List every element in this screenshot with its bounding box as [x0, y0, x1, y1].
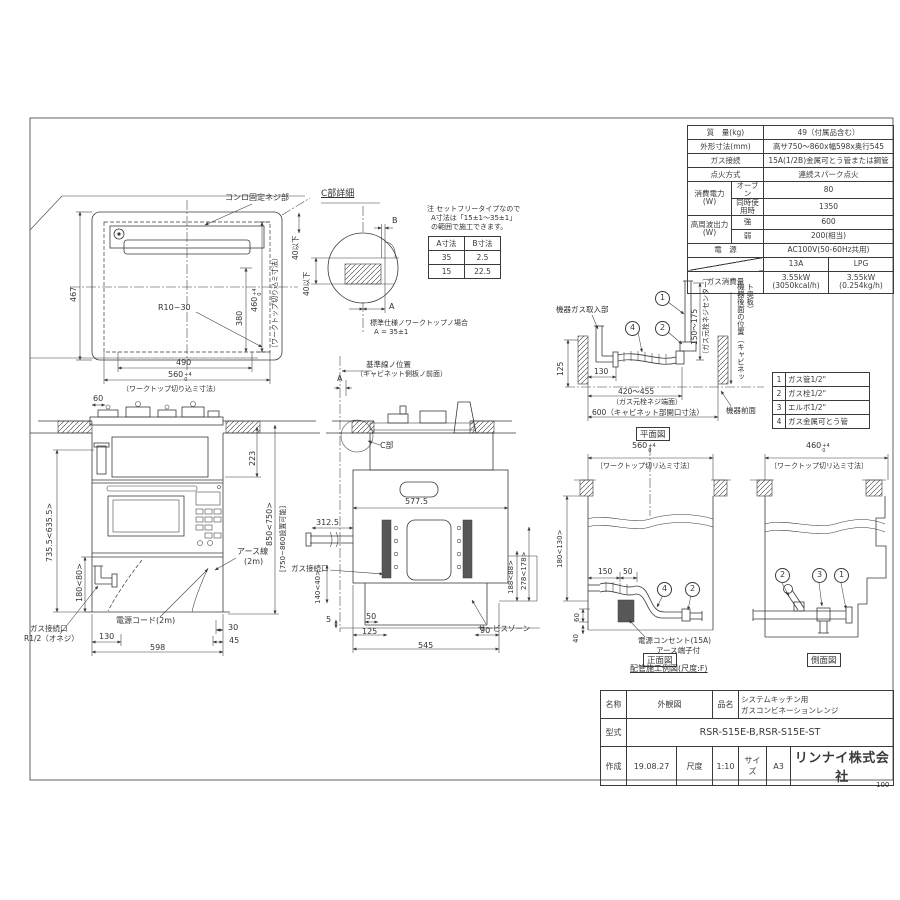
detail-c-marker: C部: [380, 442, 394, 451]
cutout-note-right: （ワークトップ切り込ミ寸法）: [272, 254, 280, 352]
detail-c: [311, 203, 399, 332]
ab-r1a: 35: [429, 251, 465, 265]
dim-850: 850<750>: [266, 502, 275, 546]
dim-560-pfront: 560+40: [632, 442, 656, 454]
spec-consumption-lpg: 3.55kW(0.254kg/h): [829, 271, 894, 293]
dim-600-opening: 600（キャビネット部開口寸法）: [592, 409, 704, 417]
balloon-1-pside: 1: [834, 568, 849, 583]
dim-5: 5: [326, 616, 331, 625]
dim-223: 223: [249, 451, 258, 466]
dim-420-455: 420～455: [618, 388, 654, 396]
tb-model-label: 型式: [601, 719, 627, 747]
spec-strong-value: 600: [764, 215, 894, 229]
piping-front-view: [563, 446, 731, 637]
part-2-no: 2: [773, 387, 786, 401]
appliance-back-note: 機器後面の位置（キャビネット奥板）: [736, 283, 755, 387]
spec-supply-label: 電 源: [688, 243, 764, 257]
ab-r2a: 15: [429, 265, 465, 279]
part-1-no: 1: [773, 373, 786, 387]
dim-150-pfront: 150: [598, 568, 612, 576]
std-worktop-note-2: A = 35±1: [374, 329, 408, 337]
dim-150-175: 150～175: [691, 309, 699, 345]
tb-date-value: 19.08.27: [627, 747, 677, 786]
part-1-name: ガス管1/2": [786, 373, 870, 387]
dim-467: 467: [70, 287, 79, 302]
balloon-3-pside: 3: [812, 568, 827, 583]
tb-name-value: 外観図: [627, 691, 713, 719]
tb-pname-value: システムキッチン用ガスコンビネーションレンジ: [739, 691, 894, 719]
spec-ignition-label: 点火方式: [688, 168, 764, 182]
drawing-sheet: コンロ固定ネジ部 467 R10~30 380 460+40 （ワークトップ切り…: [0, 0, 900, 900]
konro-screw-label: コンロ固定ネジ部: [225, 194, 289, 203]
dim-125-side: 125: [362, 628, 377, 637]
detail-c-title: C部詳細: [321, 190, 354, 200]
pside-worktop-note: 〔ワークトップ切リ込ミ寸法〕: [770, 463, 868, 471]
spec-oven-value: 80: [764, 182, 894, 199]
dim-180-130: 180<130>: [557, 530, 565, 568]
dim-460-pside: 460+40: [806, 442, 830, 454]
tb-model-value: RSR-S15E-B,RSR-S15E-ST: [627, 719, 894, 747]
spec-strong-label: 強: [732, 215, 764, 229]
dim-a-side: A: [337, 375, 342, 384]
ab-dimension-table: A寸法B寸法 352.5 1522.5: [428, 236, 501, 279]
earth-wire-label-1: アース線: [237, 548, 268, 557]
dim-560-cutout: 560+40: [168, 371, 192, 383]
dim-278-178: 278<178>: [521, 552, 529, 590]
spec-gasconn-label: ガス接続: [688, 154, 764, 168]
dim-3125: 312.5: [316, 519, 339, 528]
service-zone-label: サービスゾーン: [478, 625, 530, 633]
tb-company: リンナイ株式会社: [791, 747, 894, 786]
balloon-4-pfront: 4: [657, 582, 672, 597]
power-cord-label: 電源コード(2m): [116, 617, 175, 626]
std-worktop-note-1: 標準仕様ノワークトップノ場合: [370, 320, 468, 328]
spec-consumption-13a: 3.55kW(3050kcal/h): [764, 271, 829, 293]
spec-weak-label: 弱: [732, 229, 764, 243]
page-number: 100: [876, 782, 889, 790]
appliance-front-label: 機器前面: [726, 407, 756, 415]
dim-125-plan: 125: [557, 362, 565, 376]
balloon-2-pside: 2: [775, 568, 790, 583]
ab-col-a: A寸法: [429, 237, 465, 251]
ab-r2b: 22.5: [465, 265, 501, 279]
balloon-2-pfront: 2: [685, 582, 700, 597]
dim-460-cutout: 460+40: [251, 288, 263, 312]
spec-microwave-label: 高周波出力(W): [688, 215, 732, 243]
ab-col-b: B寸法: [465, 237, 501, 251]
detail-c-note-2: A寸法は「15±1～35±1」: [431, 215, 516, 223]
dim-30: 30: [228, 624, 238, 633]
spec-simul-label: 同時使用時: [732, 198, 764, 215]
reference-line-label-1: 基準線ノ位置: [366, 361, 411, 369]
title-block: 名称 外観図 品名 システムキッチン用ガスコンビネーションレンジ 型式 RSR-…: [600, 690, 894, 786]
spec-mass-label: 質 量(kg): [688, 126, 764, 140]
dim-188-88: 188<88>: [508, 560, 516, 594]
spec-gas-13a: 13A: [764, 257, 829, 271]
spec-supply-value: AC100V(50-60Hz共用): [764, 243, 894, 257]
cutout-note-bottom: （ワークトップ切り込ミ寸法）: [122, 386, 220, 394]
part-2-name: ガス栓1/2": [786, 387, 870, 401]
spec-mass-value: 49（付属品含む）: [764, 126, 894, 140]
spec-gas-lpg: LPG: [829, 257, 894, 271]
ab-r1b: 2.5: [465, 251, 501, 265]
spec-size-value: 高サ750～860x幅598x奥行545: [764, 140, 894, 154]
balloon-2-plan: 2: [655, 321, 670, 336]
dim-598: 598: [150, 644, 165, 653]
dim-40-pfront: 40: [573, 634, 581, 643]
tb-pname-label: 品名: [713, 691, 739, 719]
spec-oven-label: オーブン: [732, 182, 764, 199]
detail-c-note-3: の範囲で施工できます。: [431, 224, 507, 232]
spec-simul-value: 1350: [764, 198, 894, 215]
caption-plan-view: 平面図: [636, 427, 670, 441]
spec-gas-type-diagonal: [688, 257, 764, 271]
spec-consumption-label: ガス消費量: [688, 271, 764, 293]
dim-140-40: 140<40>: [315, 570, 323, 604]
tb-scale-label: 尺度: [677, 747, 713, 786]
dim-45: 45: [229, 637, 239, 646]
dim-r10-30: R10~30: [158, 304, 191, 313]
spec-power-label: 消費電力(W): [688, 182, 732, 216]
tb-size-label: サイズ: [739, 747, 767, 786]
tb-date-label: 作成: [601, 747, 627, 786]
dim-a-label: A: [389, 303, 394, 312]
parts-list-table: 1ガス管1/2" 2ガス栓1/2" 3エルボ1/2" 4ガス金属可とう管: [772, 372, 870, 429]
balloon-4-plan: 4: [625, 321, 640, 336]
outlet-label-1: 電源コンセント(15A): [638, 637, 711, 645]
dim-40-max: 40以下: [292, 235, 300, 260]
spec-ignition-value: 連続スパーク点火: [764, 168, 894, 182]
dim-735: 735.5<635.5>: [46, 503, 55, 562]
earth-wire-label-2: (2m): [244, 558, 263, 567]
gas-port-label-1: ガス接続口: [30, 625, 68, 633]
part-3-no: 3: [773, 401, 786, 415]
spec-table: 質 量(kg)49（付属品含む） 外形寸法(mm)高サ750～860x幅598x…: [687, 125, 894, 294]
piping-side-view: [750, 454, 888, 637]
dim-b-label: B: [392, 217, 398, 226]
dim-180-80: 180<80>: [76, 563, 85, 602]
dim-130-plan: 130: [594, 368, 608, 376]
spec-weak-value: 200(相当): [764, 229, 894, 243]
dim-130-front: 130: [99, 633, 114, 642]
tb-size-value: A3: [767, 747, 791, 786]
spec-size-label: 外形寸法(mm): [688, 140, 764, 154]
gas-port-label-2: R1/2（オネジ）: [24, 635, 79, 643]
dim-50-side: 50: [366, 613, 376, 622]
dim-490: 490: [176, 359, 191, 368]
part-4-no: 4: [773, 415, 786, 429]
dim-60-pfront: 60: [574, 613, 582, 622]
dim-60: 60: [93, 395, 103, 404]
balloon-1-plan: 1: [655, 291, 670, 306]
piping-example-title: 配管施工例図(尺度:F): [630, 665, 708, 674]
caption-side-view: 側面図: [807, 653, 841, 667]
dim-5775: 577.5: [405, 498, 428, 507]
gas-valve-end-note: （ガス元栓ネジ端面）: [612, 399, 682, 407]
reference-line-label-2: （キャビネット側板ノ前面）: [356, 371, 447, 379]
gas-port-side-label: ガス接続口: [291, 565, 329, 573]
tb-name-label: 名称: [601, 691, 627, 719]
dim-380: 380: [236, 311, 245, 326]
detail-c-note-1: 注 セットフリータイプなので: [427, 206, 520, 214]
dim-545: 545: [418, 642, 433, 651]
part-3-name: エルボ1/2": [786, 401, 870, 415]
gas-intake-label: 機器ガス取入部: [556, 306, 609, 314]
spec-gasconn-value: 15A(1/2B)金属可とう管または鋼管: [764, 154, 894, 168]
install-range-note: [750~860設置可能]: [280, 506, 288, 572]
tb-scale-value: 1:10: [713, 747, 739, 786]
dim-50-pfront: 50: [623, 568, 633, 576]
pfront-worktop-note: 〔ワークトップ切リ込ミ寸法〕: [596, 463, 694, 471]
part-4-name: ガス金属可とう管: [786, 415, 870, 429]
detail-c-40-max: 40以下: [303, 271, 311, 296]
